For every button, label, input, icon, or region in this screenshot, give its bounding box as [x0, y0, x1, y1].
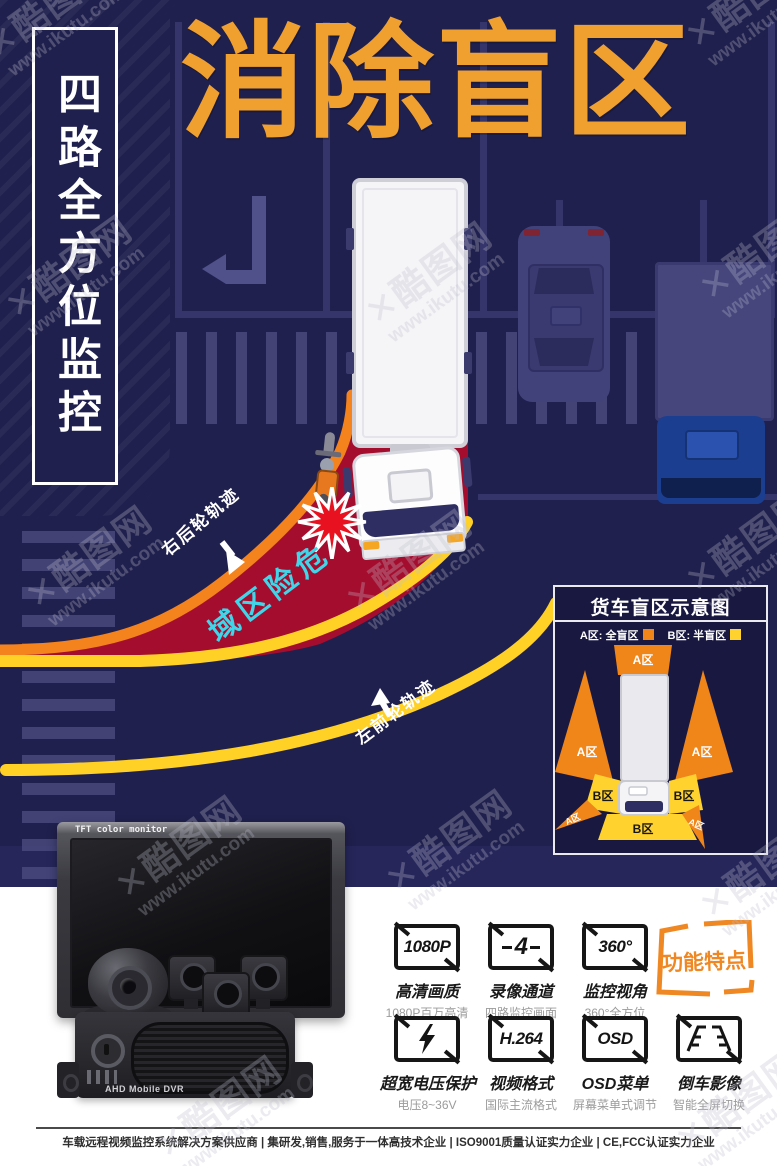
four-channel-icon: 4 — [488, 924, 554, 970]
footer-text: 车载远程视频监控系统解决方案供应商 | 集研发,销售,服务于一体高技术企业 | … — [0, 1134, 777, 1150]
svg-text:B区: B区 — [593, 789, 614, 803]
svg-text:B区: B区 — [674, 789, 695, 803]
feature-reverse: 倒车影像 智能全屏切换 — [662, 1016, 756, 1113]
truck-trailer — [352, 178, 468, 448]
svg-text:A区: A区 — [633, 653, 654, 667]
feature-channels: 4 录像通道 四路监控画面 — [474, 924, 568, 1021]
reverse-camera-icon — [676, 1016, 742, 1062]
feature-360: 360° 监控视角 360°全方位 — [568, 924, 662, 1021]
feature-codec: H.264 视频格式 国际主流格式 — [474, 1016, 568, 1113]
feature-1080p: 1080P 高清画质 1080P百万高清 — [380, 924, 474, 1021]
side-banner: 四路全方位监控 — [32, 27, 118, 485]
feature-badge: 功能特点 — [652, 920, 756, 998]
lightning-icon — [394, 1016, 460, 1062]
360-degree-icon: 360° — [582, 924, 648, 970]
feature-voltage: 超宽电压保护 电压8~36V — [380, 1016, 474, 1113]
feature-osd: OSD OSD菜单 屏幕菜单式调节 — [568, 1016, 662, 1113]
trailer-hinge — [464, 228, 472, 250]
svg-text:B区: B区 — [633, 822, 654, 836]
feature-grid: 1080P 高清画质 1080P百万高清 4 录像通道 四路监控画面 360° … — [380, 920, 772, 1120]
trailer-hinge — [464, 352, 472, 374]
osd-icon: OSD — [582, 1016, 648, 1062]
svg-text:A区: A区 — [577, 745, 598, 759]
svg-text:A区: A区 — [692, 745, 713, 759]
monitor-label: TFT color monitor — [75, 825, 167, 835]
page-title: 消除盲区 — [180, 14, 777, 153]
h264-icon: H.264 — [488, 1016, 554, 1062]
diagram-truck-graphic: A区 A区 A区 B区 B区 B区 A区 A区 — [555, 587, 766, 853]
footer-divider — [36, 1127, 741, 1129]
1080p-icon: 1080P — [394, 924, 460, 970]
trailer-hinge — [346, 352, 354, 374]
mobile-dvr: AHD Mobile DVR — [75, 1012, 295, 1098]
blind-spot-diagram: 货车盲区示意图 A区: 全盲区 B区: 半盲区 A区 A区 A区 B区 B区 B… — [553, 585, 768, 855]
poster: 右后轮轨迹 域区险危 左前轮轨迹 货车盲区示意图 A区: 全盲区 B区: 半盲区… — [0, 0, 777, 1166]
side-banner-text: 四路全方位监控 — [53, 71, 97, 442]
dvr-label: AHD Mobile DVR — [105, 1084, 184, 1094]
trailer-hinge — [346, 228, 354, 250]
